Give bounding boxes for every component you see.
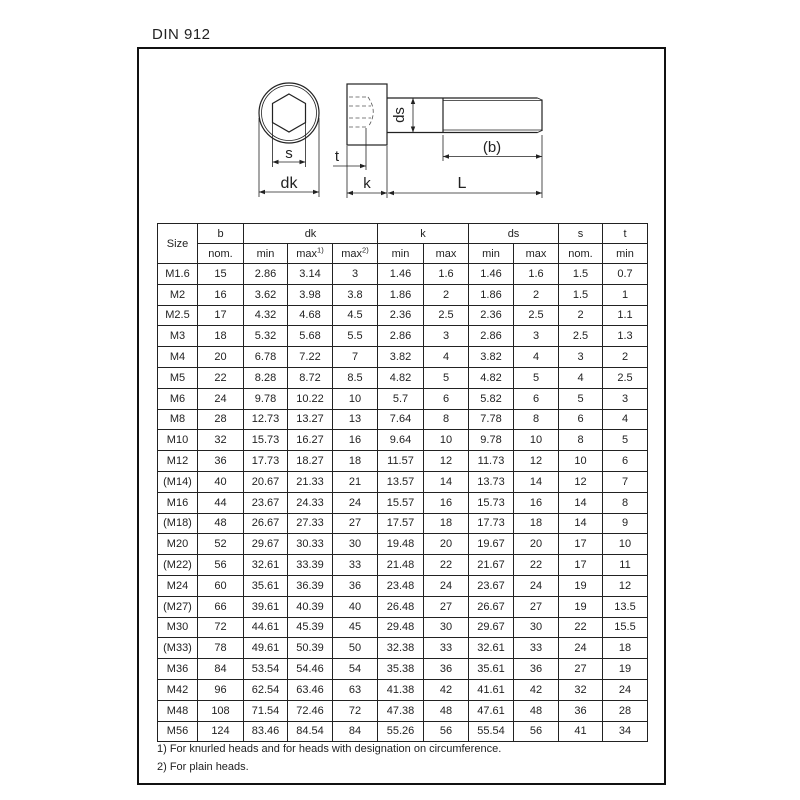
table-row: M103215.7316.27169.64109.781085 xyxy=(158,430,648,451)
dim-label-t: t xyxy=(335,148,340,165)
value-cell: 24 xyxy=(559,638,603,659)
value-cell: 36.39 xyxy=(288,575,333,596)
value-cell: 84.54 xyxy=(288,721,333,742)
value-cell: 8.28 xyxy=(244,367,288,388)
value-cell: 2.36 xyxy=(378,305,424,326)
table-row: M123617.7318.271811.571211.7312106 xyxy=(158,451,648,472)
value-cell: 20.67 xyxy=(244,471,288,492)
value-cell: 17 xyxy=(198,305,244,326)
subheader-k-max: max xyxy=(424,244,469,264)
value-cell: 18 xyxy=(333,451,378,472)
size-cell: (M33) xyxy=(158,638,198,659)
header-k: k xyxy=(378,224,469,244)
size-cell: M20 xyxy=(158,534,198,555)
value-cell: 22 xyxy=(424,555,469,576)
value-cell: 19 xyxy=(603,659,648,680)
value-cell: 8.5 xyxy=(333,367,378,388)
value-cell: 18 xyxy=(424,513,469,534)
value-cell: 52 xyxy=(198,534,244,555)
value-cell: 9.64 xyxy=(378,430,424,451)
value-cell: 2.86 xyxy=(469,326,514,347)
size-cell: (M18) xyxy=(158,513,198,534)
value-cell: 13.57 xyxy=(378,471,424,492)
value-cell: 9.78 xyxy=(469,430,514,451)
value-cell: 71.54 xyxy=(244,700,288,721)
head-side-outline xyxy=(347,84,387,145)
value-cell: 20 xyxy=(198,347,244,368)
value-cell: 22 xyxy=(198,367,244,388)
value-cell: 7.78 xyxy=(469,409,514,430)
screw-side-view xyxy=(347,84,542,145)
value-cell: 54 xyxy=(333,659,378,680)
value-cell: 32 xyxy=(559,679,603,700)
dim-label-k: k xyxy=(363,175,371,192)
size-cell: M8 xyxy=(158,409,198,430)
value-cell: 28 xyxy=(198,409,244,430)
value-cell: 16 xyxy=(333,430,378,451)
value-cell: 18 xyxy=(198,326,244,347)
value-cell: 124 xyxy=(198,721,244,742)
value-cell: 36 xyxy=(198,451,244,472)
value-cell: 15.73 xyxy=(469,492,514,513)
value-cell: 10 xyxy=(603,534,648,555)
value-cell: 55.54 xyxy=(469,721,514,742)
value-cell: 18.27 xyxy=(288,451,333,472)
value-cell: 21.33 xyxy=(288,471,333,492)
value-cell: 39.61 xyxy=(244,596,288,617)
value-cell: 4.82 xyxy=(378,367,424,388)
table-row: (M14)4020.6721.332113.571413.7314127 xyxy=(158,471,648,492)
value-cell: 3 xyxy=(514,326,559,347)
table-row: M2163.623.983.81.8621.8621.51 xyxy=(158,284,648,305)
size-cell: M3 xyxy=(158,326,198,347)
value-cell: 20 xyxy=(514,534,559,555)
value-cell: 84 xyxy=(333,721,378,742)
footnote-1: 1) For knurled heads and for heads with … xyxy=(157,743,501,755)
value-cell: 4.32 xyxy=(244,305,288,326)
value-cell: 72.46 xyxy=(288,700,333,721)
value-cell: 36 xyxy=(333,575,378,596)
value-cell: 72 xyxy=(198,617,244,638)
value-cell: 28 xyxy=(603,700,648,721)
table-row: M2.5174.324.684.52.362.52.362.521.1 xyxy=(158,305,648,326)
value-cell: 1.1 xyxy=(603,305,648,326)
value-cell: 18 xyxy=(514,513,559,534)
value-cell: 23.67 xyxy=(469,575,514,596)
value-cell: 48 xyxy=(514,700,559,721)
size-cell: M16 xyxy=(158,492,198,513)
value-cell: 63 xyxy=(333,679,378,700)
value-cell: 5.32 xyxy=(244,326,288,347)
value-cell: 14 xyxy=(559,492,603,513)
dim-label-L: L xyxy=(458,175,467,192)
value-cell: 48 xyxy=(198,513,244,534)
value-cell: 5.82 xyxy=(469,388,514,409)
value-cell: 5.7 xyxy=(378,388,424,409)
value-cell: 3.62 xyxy=(244,284,288,305)
value-cell: 32.38 xyxy=(378,638,424,659)
table-row: (M18)4826.6727.332717.571817.7318149 xyxy=(158,513,648,534)
value-cell: 1.3 xyxy=(603,326,648,347)
table-row: M1.6152.863.1431.461.61.461.61.50.7 xyxy=(158,264,648,285)
value-cell: 21.48 xyxy=(378,555,424,576)
value-cell: 2 xyxy=(603,347,648,368)
value-cell: 8 xyxy=(559,430,603,451)
value-cell: 5 xyxy=(424,367,469,388)
value-cell: 33 xyxy=(514,638,559,659)
value-cell: 49.61 xyxy=(244,638,288,659)
value-cell: 8 xyxy=(603,492,648,513)
value-cell: 36 xyxy=(514,659,559,680)
size-cell: (M14) xyxy=(158,471,198,492)
value-cell: 15.57 xyxy=(378,492,424,513)
header-s: s xyxy=(559,224,603,244)
value-cell: 1.6 xyxy=(424,264,469,285)
value-cell: 8 xyxy=(514,409,559,430)
value-cell: 40 xyxy=(333,596,378,617)
value-cell: 32.61 xyxy=(244,555,288,576)
value-cell: 47.61 xyxy=(469,700,514,721)
value-cell: 7.22 xyxy=(288,347,333,368)
value-cell: 41.38 xyxy=(378,679,424,700)
value-cell: 21 xyxy=(333,471,378,492)
value-cell: 9 xyxy=(603,513,648,534)
value-cell: 1.86 xyxy=(378,284,424,305)
value-cell: 4.82 xyxy=(469,367,514,388)
value-cell: 15.5 xyxy=(603,617,648,638)
value-cell: 55.26 xyxy=(378,721,424,742)
header-t: t xyxy=(603,224,648,244)
value-cell: 13.27 xyxy=(288,409,333,430)
value-cell: 108 xyxy=(198,700,244,721)
value-cell: 66 xyxy=(198,596,244,617)
value-cell: 13.73 xyxy=(469,471,514,492)
subheader-s-nom: nom. xyxy=(559,244,603,264)
value-cell: 5 xyxy=(603,430,648,451)
value-cell: 30 xyxy=(514,617,559,638)
value-cell: 5 xyxy=(514,367,559,388)
value-cell: 17.73 xyxy=(469,513,514,534)
value-cell: 16.27 xyxy=(288,430,333,451)
subheader-b-nom: nom. xyxy=(198,244,244,264)
value-cell: 54.46 xyxy=(288,659,333,680)
value-cell: 19 xyxy=(559,596,603,617)
value-cell: 30 xyxy=(333,534,378,555)
value-cell: 33 xyxy=(424,638,469,659)
value-cell: 33 xyxy=(333,555,378,576)
value-cell: 17 xyxy=(559,555,603,576)
value-cell: 11.73 xyxy=(469,451,514,472)
value-cell: 3.98 xyxy=(288,284,333,305)
value-cell: 1.5 xyxy=(559,284,603,305)
value-cell: 7.64 xyxy=(378,409,424,430)
value-cell: 12 xyxy=(424,451,469,472)
value-cell: 5.5 xyxy=(333,326,378,347)
value-cell: 4.68 xyxy=(288,305,333,326)
value-cell: 84 xyxy=(198,659,244,680)
size-cell: M5 xyxy=(158,367,198,388)
size-cell: M2 xyxy=(158,284,198,305)
value-cell: 24.33 xyxy=(288,492,333,513)
value-cell: 26.48 xyxy=(378,596,424,617)
value-cell: 47.38 xyxy=(378,700,424,721)
value-cell: 19.67 xyxy=(469,534,514,555)
value-cell: 63.46 xyxy=(288,679,333,700)
table-header: Size b dk k ds s t nom. min max1) max2) … xyxy=(158,224,648,264)
value-cell: 56 xyxy=(514,721,559,742)
value-cell: 2.5 xyxy=(424,305,469,326)
value-cell: 4.5 xyxy=(333,305,378,326)
value-cell: 3.82 xyxy=(378,347,424,368)
value-cell: 1 xyxy=(603,284,648,305)
size-cell: (M27) xyxy=(158,596,198,617)
value-cell: 3.14 xyxy=(288,264,333,285)
table-row: (M27)6639.6140.394026.482726.67271913.5 xyxy=(158,596,648,617)
value-cell: 17.57 xyxy=(378,513,424,534)
value-cell: 10 xyxy=(559,451,603,472)
value-cell: 3 xyxy=(424,326,469,347)
value-cell: 1.46 xyxy=(469,264,514,285)
value-cell: 32 xyxy=(198,430,244,451)
header-ds: ds xyxy=(469,224,559,244)
table-row: M4810871.5472.467247.384847.61483628 xyxy=(158,700,648,721)
value-cell: 35.38 xyxy=(378,659,424,680)
table-row: M5612483.4684.548455.265655.54564134 xyxy=(158,721,648,742)
value-cell: 17 xyxy=(559,534,603,555)
value-cell: 13.5 xyxy=(603,596,648,617)
subheader-dk-min: min xyxy=(244,244,288,264)
value-cell: 72 xyxy=(333,700,378,721)
value-cell: 29.67 xyxy=(244,534,288,555)
table-row: M164423.6724.332415.571615.7316148 xyxy=(158,492,648,513)
size-cell: M24 xyxy=(158,575,198,596)
size-cell: M36 xyxy=(158,659,198,680)
value-cell: 1.86 xyxy=(469,284,514,305)
value-cell: 2.36 xyxy=(469,305,514,326)
size-cell: M56 xyxy=(158,721,198,742)
table-row: M368453.5454.465435.383635.61362719 xyxy=(158,659,648,680)
table-row: M3185.325.685.52.8632.8632.51.3 xyxy=(158,326,648,347)
table-row: M246035.6136.393623.482423.67241912 xyxy=(158,575,648,596)
value-cell: 40 xyxy=(198,471,244,492)
value-cell: 20 xyxy=(424,534,469,555)
value-cell: 6 xyxy=(603,451,648,472)
value-cell: 10 xyxy=(333,388,378,409)
subheader-ds-max: max xyxy=(514,244,559,264)
subheader-dk-max1: max1) xyxy=(288,244,333,264)
value-cell: 23.67 xyxy=(244,492,288,513)
value-cell: 19.48 xyxy=(378,534,424,555)
table-row: M5228.288.728.54.8254.82542.5 xyxy=(158,367,648,388)
value-cell: 27 xyxy=(514,596,559,617)
value-cell: 24 xyxy=(514,575,559,596)
subheader-t-min: min xyxy=(603,244,648,264)
dim-label-b: (b) xyxy=(483,139,501,156)
value-cell: 83.46 xyxy=(244,721,288,742)
value-cell: 35.61 xyxy=(469,659,514,680)
value-cell: 3 xyxy=(603,388,648,409)
page-title: DIN 912 xyxy=(152,26,211,43)
value-cell: 2.5 xyxy=(559,326,603,347)
value-cell: 15 xyxy=(198,264,244,285)
value-cell: 14 xyxy=(559,513,603,534)
value-cell: 10 xyxy=(514,430,559,451)
size-cell: M2.5 xyxy=(158,305,198,326)
size-cell: M10 xyxy=(158,430,198,451)
value-cell: 60 xyxy=(198,575,244,596)
value-cell: 6.78 xyxy=(244,347,288,368)
value-cell: 1.46 xyxy=(378,264,424,285)
value-cell: 24 xyxy=(603,679,648,700)
screw-technical-drawing: s dk t xyxy=(230,55,560,210)
size-cell: M6 xyxy=(158,388,198,409)
value-cell: 19 xyxy=(559,575,603,596)
value-cell: 11.57 xyxy=(378,451,424,472)
dim-label-ds: ds xyxy=(391,107,408,123)
hex-socket-outline xyxy=(273,94,306,132)
value-cell: 36 xyxy=(424,659,469,680)
value-cell: 10.22 xyxy=(288,388,333,409)
value-cell: 2 xyxy=(559,305,603,326)
table-body: M1.6152.863.1431.461.61.461.61.50.7M2163… xyxy=(158,264,648,742)
value-cell: 1.6 xyxy=(514,264,559,285)
value-cell: 8 xyxy=(424,409,469,430)
value-cell: 16 xyxy=(198,284,244,305)
size-cell: M42 xyxy=(158,679,198,700)
value-cell: 33.39 xyxy=(288,555,333,576)
value-cell: 4 xyxy=(559,367,603,388)
value-cell: 18 xyxy=(603,638,648,659)
dim-label-dk: dk xyxy=(281,175,299,192)
value-cell: 16 xyxy=(424,492,469,513)
value-cell: 6 xyxy=(559,409,603,430)
value-cell: 45.39 xyxy=(288,617,333,638)
value-cell: 27 xyxy=(424,596,469,617)
table-row: (M22)5632.6133.393321.482221.67221711 xyxy=(158,555,648,576)
value-cell: 50.39 xyxy=(288,638,333,659)
value-cell: 45 xyxy=(333,617,378,638)
value-cell: 44.61 xyxy=(244,617,288,638)
value-cell: 13 xyxy=(333,409,378,430)
size-cell: M30 xyxy=(158,617,198,638)
size-cell: (M22) xyxy=(158,555,198,576)
value-cell: 15.73 xyxy=(244,430,288,451)
value-cell: 30.33 xyxy=(288,534,333,555)
value-cell: 24 xyxy=(424,575,469,596)
value-cell: 40.39 xyxy=(288,596,333,617)
value-cell: 2 xyxy=(514,284,559,305)
value-cell: 56 xyxy=(198,555,244,576)
value-cell: 10 xyxy=(424,430,469,451)
value-cell: 30 xyxy=(424,617,469,638)
header-b: b xyxy=(198,224,244,244)
header-dk: dk xyxy=(244,224,378,244)
value-cell: 78 xyxy=(198,638,244,659)
value-cell: 44 xyxy=(198,492,244,513)
value-cell: 27.33 xyxy=(288,513,333,534)
value-cell: 27 xyxy=(559,659,603,680)
value-cell: 5 xyxy=(559,388,603,409)
dimension-t-arrow xyxy=(360,164,366,168)
value-cell: 2.5 xyxy=(514,305,559,326)
value-cell: 12 xyxy=(514,451,559,472)
value-cell: 3 xyxy=(559,347,603,368)
head-front-view xyxy=(259,83,319,143)
table-row: M82812.7313.27137.6487.78864 xyxy=(158,409,648,430)
table-row: M4206.787.2273.8243.82432 xyxy=(158,347,648,368)
value-cell: 34 xyxy=(603,721,648,742)
value-cell: 23.48 xyxy=(378,575,424,596)
header-size: Size xyxy=(158,224,198,264)
value-cell: 26.67 xyxy=(244,513,288,534)
value-cell: 62.54 xyxy=(244,679,288,700)
value-cell: 12 xyxy=(603,575,648,596)
value-cell: 2.5 xyxy=(603,367,648,388)
table-row: M205229.6730.333019.482019.67201710 xyxy=(158,534,648,555)
value-cell: 22 xyxy=(514,555,559,576)
value-cell: 41.61 xyxy=(469,679,514,700)
size-cell: M4 xyxy=(158,347,198,368)
value-cell: 42 xyxy=(514,679,559,700)
value-cell: 4 xyxy=(514,347,559,368)
value-cell: 24 xyxy=(198,388,244,409)
head-outer-circle xyxy=(259,83,319,143)
value-cell: 6 xyxy=(514,388,559,409)
value-cell: 8.72 xyxy=(288,367,333,388)
size-cell: M1.6 xyxy=(158,264,198,285)
value-cell: 12.73 xyxy=(244,409,288,430)
value-cell: 27 xyxy=(333,513,378,534)
value-cell: 2.86 xyxy=(244,264,288,285)
value-cell: 14 xyxy=(514,471,559,492)
value-cell: 42 xyxy=(424,679,469,700)
table-row: M6249.7810.22105.765.82653 xyxy=(158,388,648,409)
dim-label-s: s xyxy=(285,145,293,162)
value-cell: 11 xyxy=(603,555,648,576)
value-cell: 29.48 xyxy=(378,617,424,638)
value-cell: 2.86 xyxy=(378,326,424,347)
value-cell: 0.7 xyxy=(603,264,648,285)
subheader-k-min: min xyxy=(378,244,424,264)
value-cell: 53.54 xyxy=(244,659,288,680)
value-cell: 56 xyxy=(424,721,469,742)
value-cell: 4 xyxy=(424,347,469,368)
value-cell: 41 xyxy=(559,721,603,742)
size-cell: M48 xyxy=(158,700,198,721)
value-cell: 3.82 xyxy=(469,347,514,368)
value-cell: 14 xyxy=(424,471,469,492)
value-cell: 6 xyxy=(424,388,469,409)
value-cell: 9.78 xyxy=(244,388,288,409)
hidden-socket-lines xyxy=(349,97,373,127)
value-cell: 16 xyxy=(514,492,559,513)
footnote-2: 2) For plain heads. xyxy=(157,761,249,773)
value-cell: 2 xyxy=(424,284,469,305)
value-cell: 4 xyxy=(603,409,648,430)
subheader-ds-min: min xyxy=(469,244,514,264)
value-cell: 32.61 xyxy=(469,638,514,659)
value-cell: 1.5 xyxy=(559,264,603,285)
table-row: (M33)7849.6150.395032.383332.61332418 xyxy=(158,638,648,659)
size-cell: M12 xyxy=(158,451,198,472)
value-cell: 7 xyxy=(333,347,378,368)
value-cell: 22 xyxy=(559,617,603,638)
value-cell: 96 xyxy=(198,679,244,700)
subheader-dk-max2: max2) xyxy=(333,244,378,264)
value-cell: 12 xyxy=(559,471,603,492)
value-cell: 26.67 xyxy=(469,596,514,617)
value-cell: 21.67 xyxy=(469,555,514,576)
